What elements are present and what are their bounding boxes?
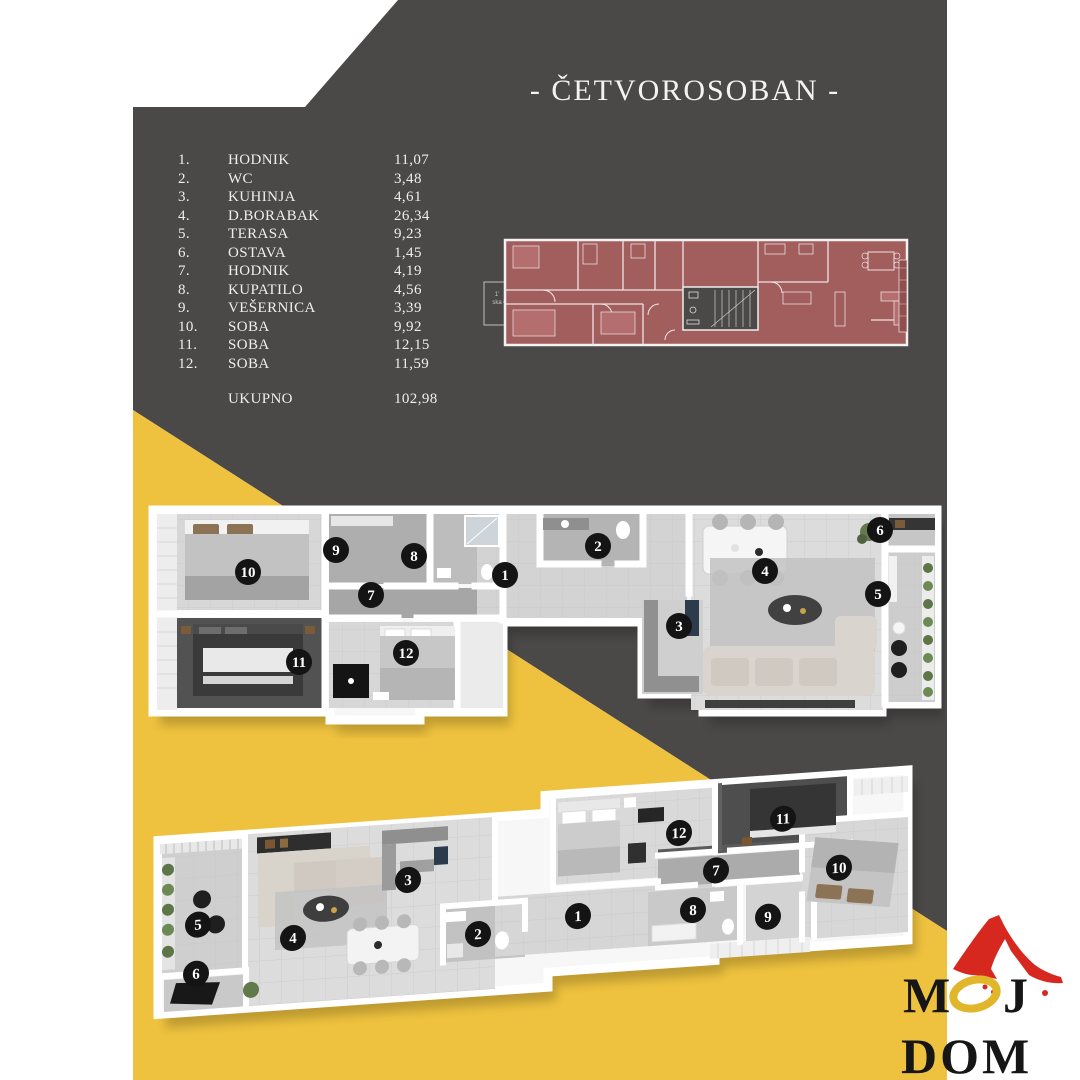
row-no: 11.: [178, 336, 228, 355]
tv-bench: [705, 700, 855, 708]
row-name: HODNIK: [228, 151, 394, 170]
svg-text:4: 4: [289, 931, 297, 948]
svg-text:9: 9: [764, 910, 771, 927]
balcony-hatch: [899, 260, 907, 332]
floorplan-3d-lower: 1 2 3 4 5 6 7 8 9 10 11 12: [150, 753, 950, 1053]
row-no: 8.: [178, 281, 228, 300]
row-name: TERASA: [228, 225, 394, 244]
logo-letter-j: J: [1003, 967, 1028, 1023]
row-no: 4.: [178, 207, 228, 226]
logo-letter-m: M: [903, 967, 950, 1023]
row-area: 9,23: [394, 225, 484, 244]
svg-text:8: 8: [410, 549, 418, 565]
svg-text:8: 8: [689, 903, 696, 920]
row-area: 4,61: [394, 188, 484, 207]
table-row: 2.WC3,48: [178, 170, 484, 189]
plan2d-note1: 1': [495, 292, 499, 298]
plan2d-body: [505, 240, 907, 345]
room-badge: 5: [865, 581, 891, 607]
table-row: 1.HODNIK11,07: [178, 151, 484, 170]
row-area: 1,45: [394, 244, 484, 263]
row-no: 6.: [178, 244, 228, 263]
table-row: 12.SOBA11,59: [178, 355, 484, 374]
room-badge: 9: [323, 537, 349, 563]
table-total-row: UKUPNO102,98: [178, 390, 484, 409]
row-name: HODNIK: [228, 262, 394, 281]
svg-text:5: 5: [874, 587, 882, 603]
svg-text:2: 2: [474, 927, 481, 944]
room-badge: 1: [492, 562, 518, 588]
row-area: 12,15: [394, 336, 484, 355]
svg-text:12: 12: [399, 646, 414, 662]
svg-text:10: 10: [832, 860, 847, 877]
svg-text:10: 10: [241, 565, 256, 581]
table-row: 9.VEŠERNICA3,39: [178, 299, 484, 318]
terrace-chair: [891, 640, 907, 656]
room-badge: 3: [666, 613, 692, 639]
row-no: 1.: [178, 151, 228, 170]
room-badge: 7: [358, 582, 384, 608]
row-no: 10.: [178, 318, 228, 337]
table-row: 3.KUHINJA4,61: [178, 188, 484, 207]
room-badge: 8: [401, 543, 427, 569]
paint-speck: [1042, 990, 1048, 996]
row-area: 4,56: [394, 281, 484, 300]
table-row: 6.OSTAVA1,45: [178, 244, 484, 263]
svg-text:3: 3: [404, 873, 411, 890]
svg-text:1: 1: [501, 568, 509, 584]
room-badge: 11: [286, 649, 312, 675]
total-value: 102,98: [394, 390, 484, 409]
table-row: 7.HODNIK4,19: [178, 262, 484, 281]
row-area: 4,19: [394, 262, 484, 281]
plan2d-note2: ska: [492, 300, 502, 306]
mojdom-logo: M J DOM: [895, 903, 1080, 1080]
row-name: VEŠERNICA: [228, 299, 394, 318]
svg-text:6: 6: [192, 967, 200, 984]
row-no: 3.: [178, 188, 228, 207]
table-row: 10.SOBA9,92: [178, 318, 484, 337]
mojdom-logo-graphic: M J DOM: [895, 903, 1080, 1080]
closet-strip: [457, 622, 503, 708]
row-no: 12.: [178, 355, 228, 374]
room-badge: 6: [867, 517, 893, 543]
room-badge: 4: [752, 558, 778, 584]
row-no: 5.: [178, 225, 228, 244]
row-area: 9,92: [394, 318, 484, 337]
bed-10: [806, 837, 898, 907]
row-area: 26,34: [394, 207, 484, 226]
svg-text:4: 4: [761, 564, 769, 580]
stairwell: [683, 287, 758, 330]
row-area: 3,48: [394, 170, 484, 189]
table-row: 4.D.BORABAK26,34: [178, 207, 484, 226]
svg-text:2: 2: [594, 539, 602, 555]
corridor-7-floor: [329, 588, 503, 618]
flyer-canvas: - ČETVOROSOBAN - 1.HODNIK11,07 2.WC3,48 …: [0, 0, 1080, 1080]
row-no: 9.: [178, 299, 228, 318]
floorplan-2d: 1' ska: [483, 232, 913, 352]
area-table: 1.HODNIK11,07 2.WC3,48 3.KUHINJA4,61 4.D…: [178, 151, 484, 409]
row-area: 3,39: [394, 299, 484, 318]
table-row: 5.TERASA9,23: [178, 225, 484, 244]
svg-text:11: 11: [776, 811, 790, 828]
row-no: 7.: [178, 262, 228, 281]
svg-text:12: 12: [672, 825, 687, 842]
svg-text:1: 1: [574, 909, 581, 926]
page-title: - ČETVOROSOBAN -: [455, 74, 915, 108]
logo-o-ring: [950, 975, 999, 1013]
room-badge: 10: [235, 559, 261, 585]
bathtub: [652, 923, 696, 942]
room-badge: 2: [585, 533, 611, 559]
svg-text:9: 9: [332, 543, 340, 559]
room-badge: 12: [393, 640, 419, 666]
row-area: 11,07: [394, 151, 484, 170]
svg-text:5: 5: [194, 917, 201, 934]
coffee-table: [768, 595, 822, 625]
table-row: 8.KUPATILO4,56: [178, 281, 484, 300]
row-name: OSTAVA: [228, 244, 394, 263]
floorplan-3d-upper: 1 2 3 4 5 6 7 8 9 10 11 12: [145, 498, 945, 738]
svg-text:7: 7: [367, 588, 375, 604]
row-name: SOBA: [228, 318, 394, 337]
svg-text:11: 11: [292, 655, 306, 671]
logo-word-dom: DOM: [901, 1028, 1032, 1080]
paint-speck: [983, 985, 988, 990]
row-area: 11,59: [394, 355, 484, 374]
terrace-chair: [891, 662, 907, 678]
row-name: KUHINJA: [228, 188, 394, 207]
svg-text:7: 7: [712, 863, 720, 880]
row-name: SOBA: [228, 336, 394, 355]
total-label: UKUPNO: [228, 390, 394, 409]
row-name: D.BORABAK: [228, 207, 394, 226]
row-name: WC: [228, 170, 394, 189]
row-name: SOBA: [228, 355, 394, 374]
svg-text:3: 3: [675, 619, 683, 635]
row-name: KUPATILO: [228, 281, 394, 300]
row-no: 2.: [178, 170, 228, 189]
table-row: 11.SOBA12,15: [178, 336, 484, 355]
svg-text:6: 6: [876, 523, 884, 539]
